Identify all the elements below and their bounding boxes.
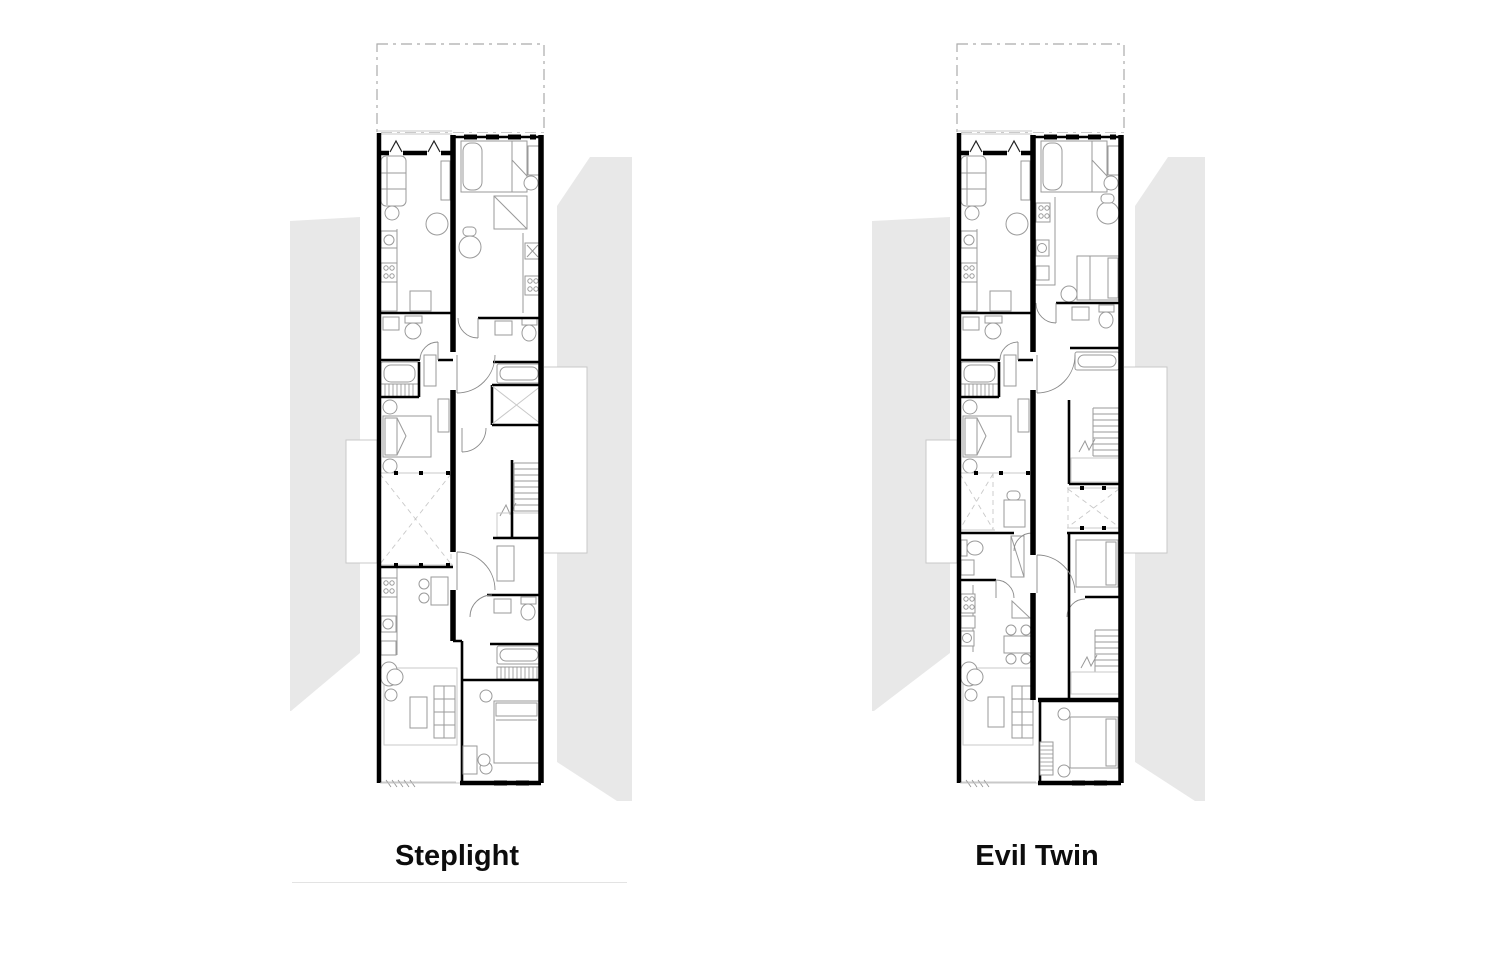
closet-shelf: [497, 546, 514, 581]
bathtub-right: [1075, 352, 1119, 370]
round-table: [1097, 202, 1119, 224]
desk: [463, 746, 477, 774]
lightwell-notch-right: [1123, 367, 1167, 553]
steplight-plan: [290, 44, 632, 801]
dining-table: [1004, 636, 1032, 653]
round-table: [459, 236, 481, 258]
dining-table: [431, 577, 448, 605]
bathtub-right-lower: [497, 646, 541, 679]
rear-extension-dashed-outline: [377, 44, 544, 133]
building-footprint: [957, 133, 1124, 785]
lightwell-notch-left: [346, 440, 377, 563]
evil-twin-caption: Evil Twin: [975, 840, 1099, 873]
lightwell-notch-right: [543, 367, 587, 553]
floor-plan-comparison-page: Steplight Evil Twin: [0, 0, 1500, 971]
desk: [1004, 500, 1025, 527]
dresser: [494, 196, 527, 229]
steplight-caption-rule: [292, 882, 627, 883]
lightwell-notch-left: [926, 440, 957, 563]
steplight-caption: Steplight: [395, 840, 519, 873]
rear-extension-dashed-outline: [957, 44, 1124, 133]
floor-plans-drawing: [0, 0, 1500, 971]
bathtub-right-upper: [497, 364, 541, 383]
evil-twin-plan: [872, 44, 1205, 801]
building-footprint: [377, 133, 544, 785]
